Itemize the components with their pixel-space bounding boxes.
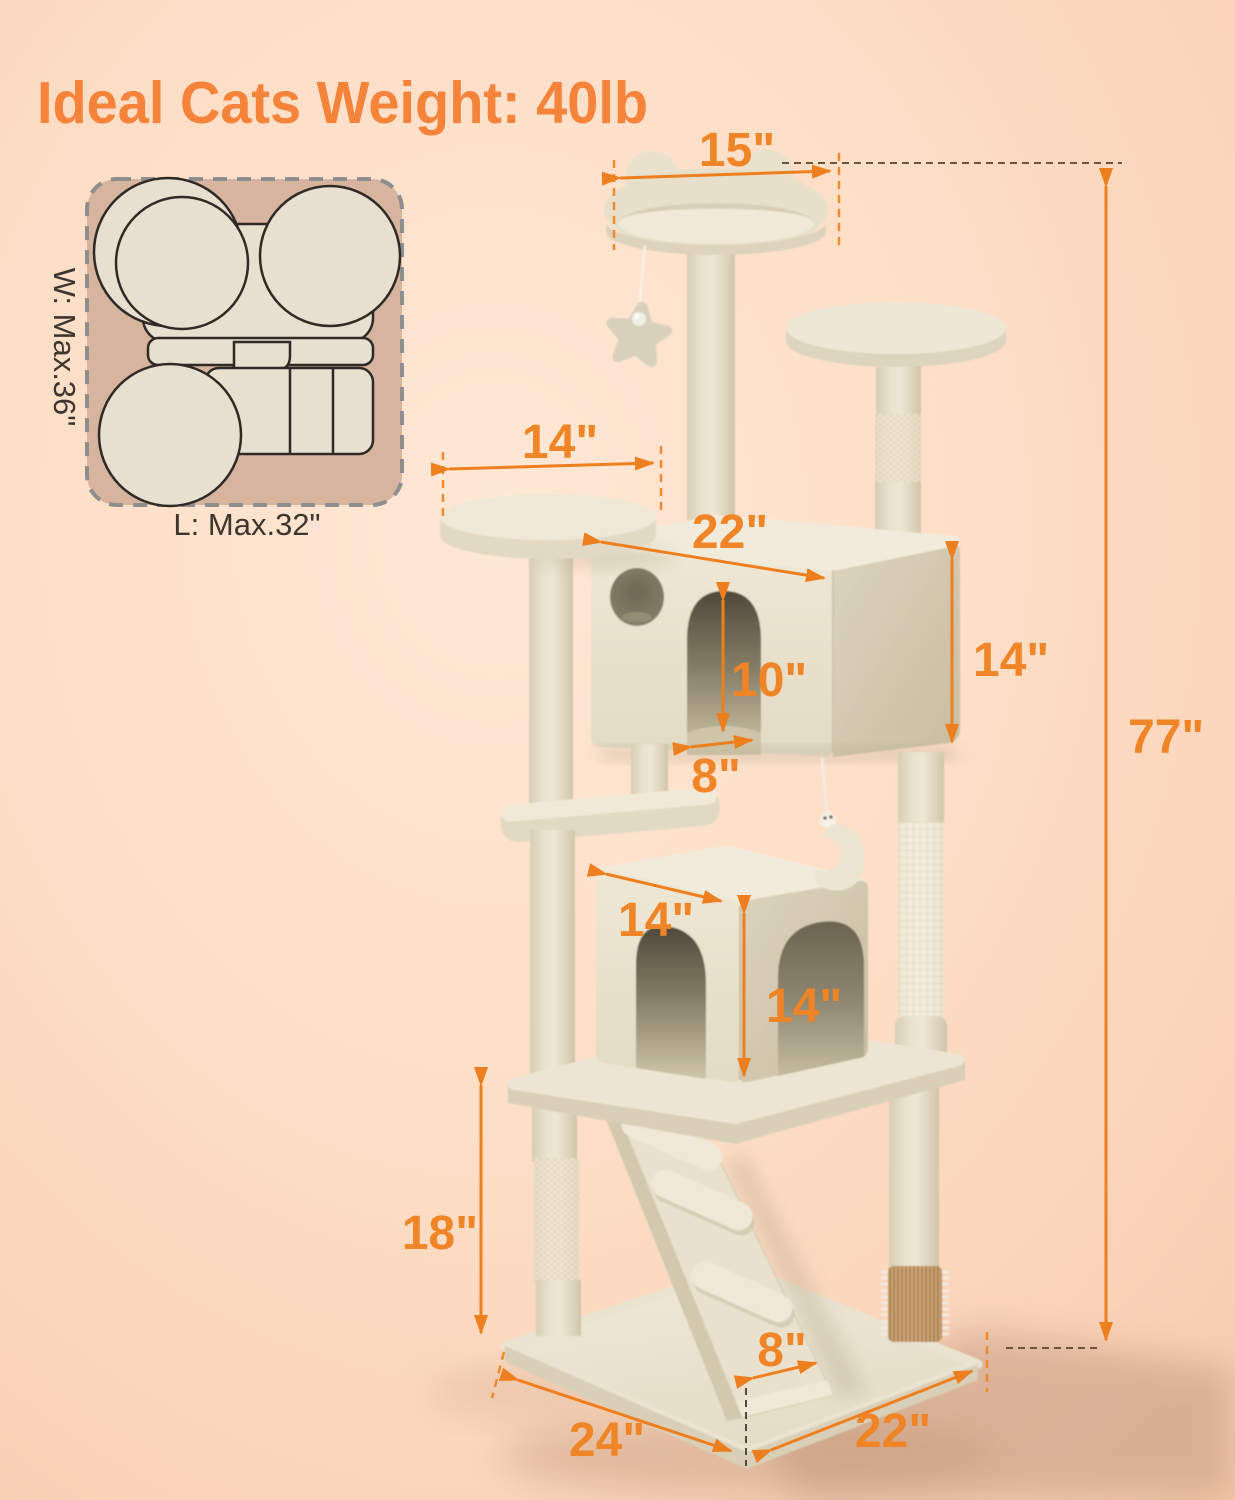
- svg-text:8": 8": [757, 1324, 806, 1377]
- svg-text:Ideal Cats Weight: 40lb: Ideal Cats Weight: 40lb: [37, 70, 648, 136]
- svg-text:10": 10": [731, 654, 807, 707]
- svg-text:18": 18": [402, 1207, 478, 1260]
- svg-text:22": 22": [855, 1405, 931, 1458]
- svg-text:14": 14": [618, 894, 694, 947]
- svg-text:24": 24": [569, 1414, 645, 1467]
- svg-text:22": 22": [692, 506, 768, 559]
- svg-text:8": 8": [691, 750, 740, 803]
- svg-text:L: Max.32": L: Max.32": [173, 507, 320, 542]
- svg-text:15": 15": [699, 124, 775, 177]
- svg-text:14": 14": [522, 416, 598, 469]
- svg-text:14": 14": [766, 980, 842, 1033]
- svg-text:W: Max.36": W: Max.36": [47, 268, 82, 427]
- svg-text:77": 77": [1128, 711, 1204, 764]
- svg-text:14": 14": [973, 634, 1049, 687]
